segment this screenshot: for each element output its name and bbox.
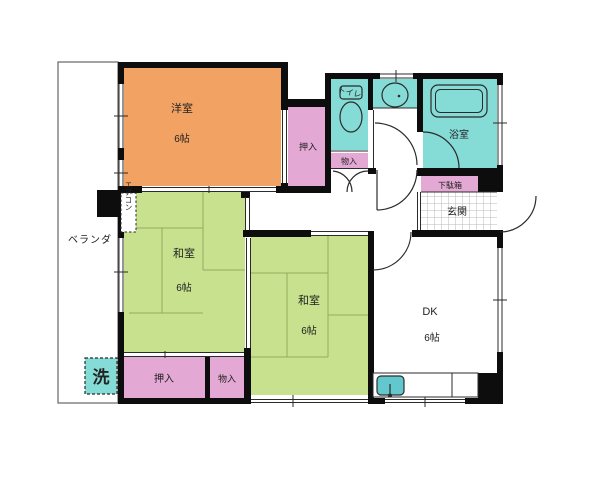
entrance-label: 玄関 — [447, 205, 467, 218]
fusuma-jr-west-hall — [246, 197, 250, 230]
aircon-label: エアコン — [124, 181, 133, 211]
japanese-room-south-label: 和室 — [298, 293, 320, 307]
shoe-cabinet-label: 下駄箱 — [438, 180, 462, 190]
toilet-door-arc — [375, 123, 417, 165]
window-dk-east — [493, 248, 507, 352]
dk-size: 6帖 — [424, 331, 440, 344]
japanese-room-west-floor — [124, 192, 245, 352]
fusuma-closet-south — [124, 351, 244, 358]
washroom-door-arc — [377, 170, 417, 210]
closet-west-label: 押入 — [299, 141, 317, 152]
western-room-floor — [124, 68, 281, 186]
fusuma-west-room — [142, 186, 276, 193]
western-room-size: 6帖 — [174, 132, 190, 145]
storage-north-label: 物入 — [341, 156, 357, 166]
kitchen-counter — [373, 373, 478, 398]
japanese-room-south-size: 6帖 — [301, 324, 317, 337]
entrance-door-arc — [500, 196, 536, 232]
floor-plan-drawing: ベランダ 洗 エアコン 洋室 6帖 押入 トイレ 物入 浴室 下駄箱 玄関 和室… — [0, 0, 600, 503]
bathroom-label: 浴室 — [449, 128, 469, 141]
storage-south-label: 物入 — [218, 373, 236, 384]
fusuma-between-japanese-rooms — [247, 238, 251, 348]
closet-south-label: 押入 — [154, 372, 174, 385]
bathroom-floor — [423, 79, 497, 168]
floor-plan: ベランダ 洗 エアコン 洋室 6帖 押入 トイレ 物入 浴室 下駄箱 玄関 和室… — [0, 0, 600, 503]
entrance-step-line — [418, 192, 421, 230]
western-room-label: 洋室 — [171, 101, 193, 115]
japanese-room-west-size: 6帖 — [176, 281, 192, 294]
fusuma-closet-west — [283, 110, 287, 183]
veranda — [58, 62, 127, 403]
window-japanese-room-south — [251, 395, 368, 407]
dk-door-arc — [373, 232, 411, 270]
storage-north-door-right-arc — [347, 171, 368, 192]
veranda-label: ベランダ — [68, 233, 112, 246]
washing-machine-label: 洗 — [93, 367, 110, 387]
fusuma-jr-south-hall — [311, 232, 368, 236]
japanese-room-west-label: 和室 — [173, 246, 195, 260]
dk-label: DK — [422, 306, 438, 318]
